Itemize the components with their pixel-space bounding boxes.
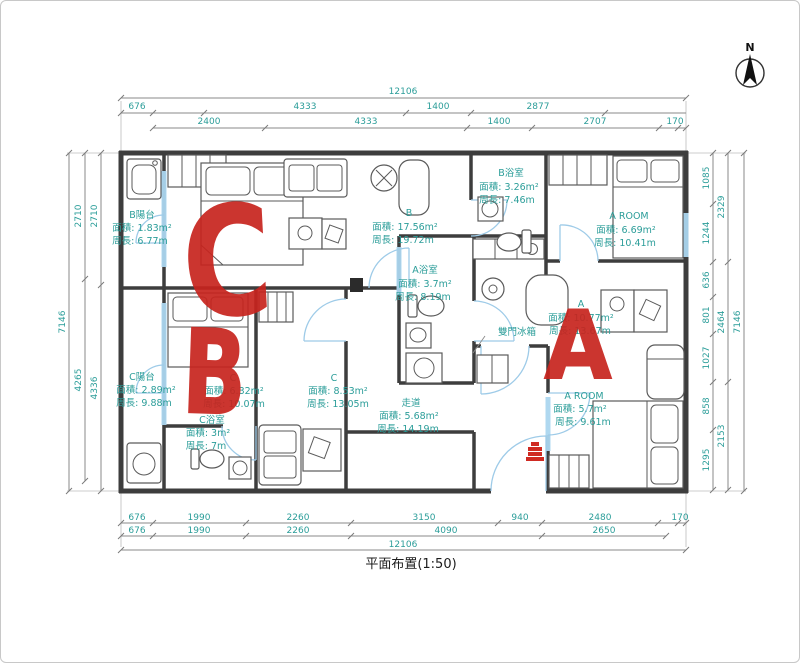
dim-label: 7146 <box>58 310 68 333</box>
dim-label: 2710 <box>90 204 100 227</box>
dim-label: 676 <box>128 513 145 523</box>
desk-icon <box>289 218 346 249</box>
room-area: 面積: 2.89m² <box>116 384 176 396</box>
room-area: 面積: 5.7m² <box>553 403 607 415</box>
dim-label: 12106 <box>389 540 418 550</box>
room-name: A ROOM <box>609 211 648 222</box>
dim-label: 4333 <box>355 117 378 127</box>
dim-label: 1085 <box>702 167 712 190</box>
room-perim: 周長: 7m <box>186 441 227 452</box>
sofa-icon <box>259 425 301 485</box>
washing-machine-icon <box>127 443 161 483</box>
dimension-labels-left: 7146 2710 4265 2710 4336 <box>58 204 100 399</box>
washbasin-icon <box>229 457 251 479</box>
room-perim: 周長: 9.88m <box>116 398 172 409</box>
washing-machine-icon <box>406 353 442 383</box>
round-sink-icon <box>482 278 504 300</box>
dim-label: 2650 <box>593 526 616 536</box>
wardrobe-icon <box>549 155 607 185</box>
dim-label: 940 <box>511 513 528 523</box>
dim-label: 4090 <box>435 526 458 536</box>
room-area: 面積: 1.83m² <box>112 222 172 234</box>
room-name: 走道 <box>401 397 421 409</box>
dim-label: 170 <box>671 513 688 523</box>
dim-label: 3150 <box>413 513 436 523</box>
room-perim: 周長: 9.61m <box>555 417 611 428</box>
room-area: 面積: 6.69m² <box>596 224 656 236</box>
dim-label: 2153 <box>717 425 727 448</box>
dim-label: 2400 <box>198 117 221 127</box>
north-needle-icon <box>743 54 757 85</box>
room-perim: 周長: 7.46m <box>479 195 535 206</box>
dimension-labels-right: 1085 1244 636 801 1027 858 1295 2329 246… <box>702 167 743 472</box>
wall-column <box>350 278 363 292</box>
wardrobe-icon <box>549 455 589 488</box>
room-name: C <box>331 373 338 384</box>
dim-label: 2710 <box>74 204 84 227</box>
room-area: 面積: 3.26m² <box>479 181 539 193</box>
fridge-callout: 雙門冰箱 <box>473 326 536 353</box>
dimension-labels-bottom: 676 1990 2260 3150 940 2480 170 676 1990… <box>128 513 688 550</box>
annotation-letter-a: A <box>545 292 612 401</box>
room-perim: 周長: 13.05m <box>307 399 369 410</box>
dim-label: 4333 <box>294 102 317 112</box>
dim-label: 2260 <box>287 513 310 523</box>
north-label: N <box>745 41 754 54</box>
dim-label: 170 <box>666 117 683 127</box>
washing-machine-icon <box>127 159 161 199</box>
single-bed-icon <box>647 345 684 399</box>
toilet-icon <box>497 230 531 253</box>
dim-label: 2329 <box>717 195 727 218</box>
dim-label: 2877 <box>527 102 550 112</box>
room-area: 面積: 8.53m² <box>308 385 368 397</box>
fridge-icon <box>477 355 508 383</box>
room-area: 面積: 3.7m² <box>398 278 452 290</box>
room-perim: 周長: 14.19m <box>377 424 439 435</box>
fridge-label: 雙門冰箱 <box>498 326 536 338</box>
dim-label: 2464 <box>717 310 727 333</box>
floor-plan-canvas: 12106 676 4333 1400 2877 2400 4333 1400 … <box>1 1 800 663</box>
room-perim: 周長: 19.72m <box>372 235 434 246</box>
toilet-icon <box>191 449 224 469</box>
room-area: 面積: 5.68m² <box>379 410 439 422</box>
dim-label: 1295 <box>702 449 712 472</box>
dim-label: 676 <box>128 102 145 112</box>
dim-label: 676 <box>128 526 145 536</box>
plant-icon <box>371 165 397 191</box>
dim-label: 4336 <box>90 376 100 399</box>
dim-label: 1400 <box>427 102 450 112</box>
room-name: A浴室 <box>412 264 438 276</box>
dim-label: 636 <box>702 271 712 288</box>
dim-label: 1400 <box>488 117 511 127</box>
drawing-title: 平面布置(1:50) <box>365 557 456 572</box>
dim-label: 2260 <box>287 526 310 536</box>
dim-label: 1027 <box>702 347 712 370</box>
dim-label: 1244 <box>702 221 712 244</box>
dim-label: 1990 <box>188 526 211 536</box>
dimension-labels-top: 12106 676 4333 1400 2877 2400 4333 1400 … <box>128 87 683 127</box>
fire-hydrant-icon <box>526 442 544 461</box>
dim-label: 2480 <box>589 513 612 523</box>
annotation-letter-b: B <box>180 304 248 442</box>
room-perim: 周長: 6.77m <box>112 236 168 247</box>
dim-label: 4265 <box>74 369 84 392</box>
room-name: B陽台 <box>129 209 155 221</box>
washbasin-icon <box>406 323 431 348</box>
room-name: B <box>406 208 413 219</box>
floor-plan-page: 12106 676 4333 1400 2877 2400 4333 1400 … <box>0 0 800 663</box>
room-name: B浴室 <box>498 167 524 179</box>
dim-label: 1990 <box>188 513 211 523</box>
room-perim: 周長: 10.41m <box>594 238 656 249</box>
north-compass: N <box>736 41 764 87</box>
room-perim: 周長: 8.19m <box>395 292 451 303</box>
cabinet-icon <box>399 160 429 215</box>
desk-icon <box>303 429 341 471</box>
dim-label: 7146 <box>733 310 743 333</box>
sofa-icon <box>284 159 347 197</box>
room-area: 面積: 17.56m² <box>372 221 438 233</box>
dim-label: 801 <box>702 306 712 323</box>
dim-label: 2707 <box>584 117 607 127</box>
room-name: C陽台 <box>129 371 155 383</box>
dim-label: 12106 <box>389 87 418 97</box>
dim-label: 858 <box>702 397 712 414</box>
